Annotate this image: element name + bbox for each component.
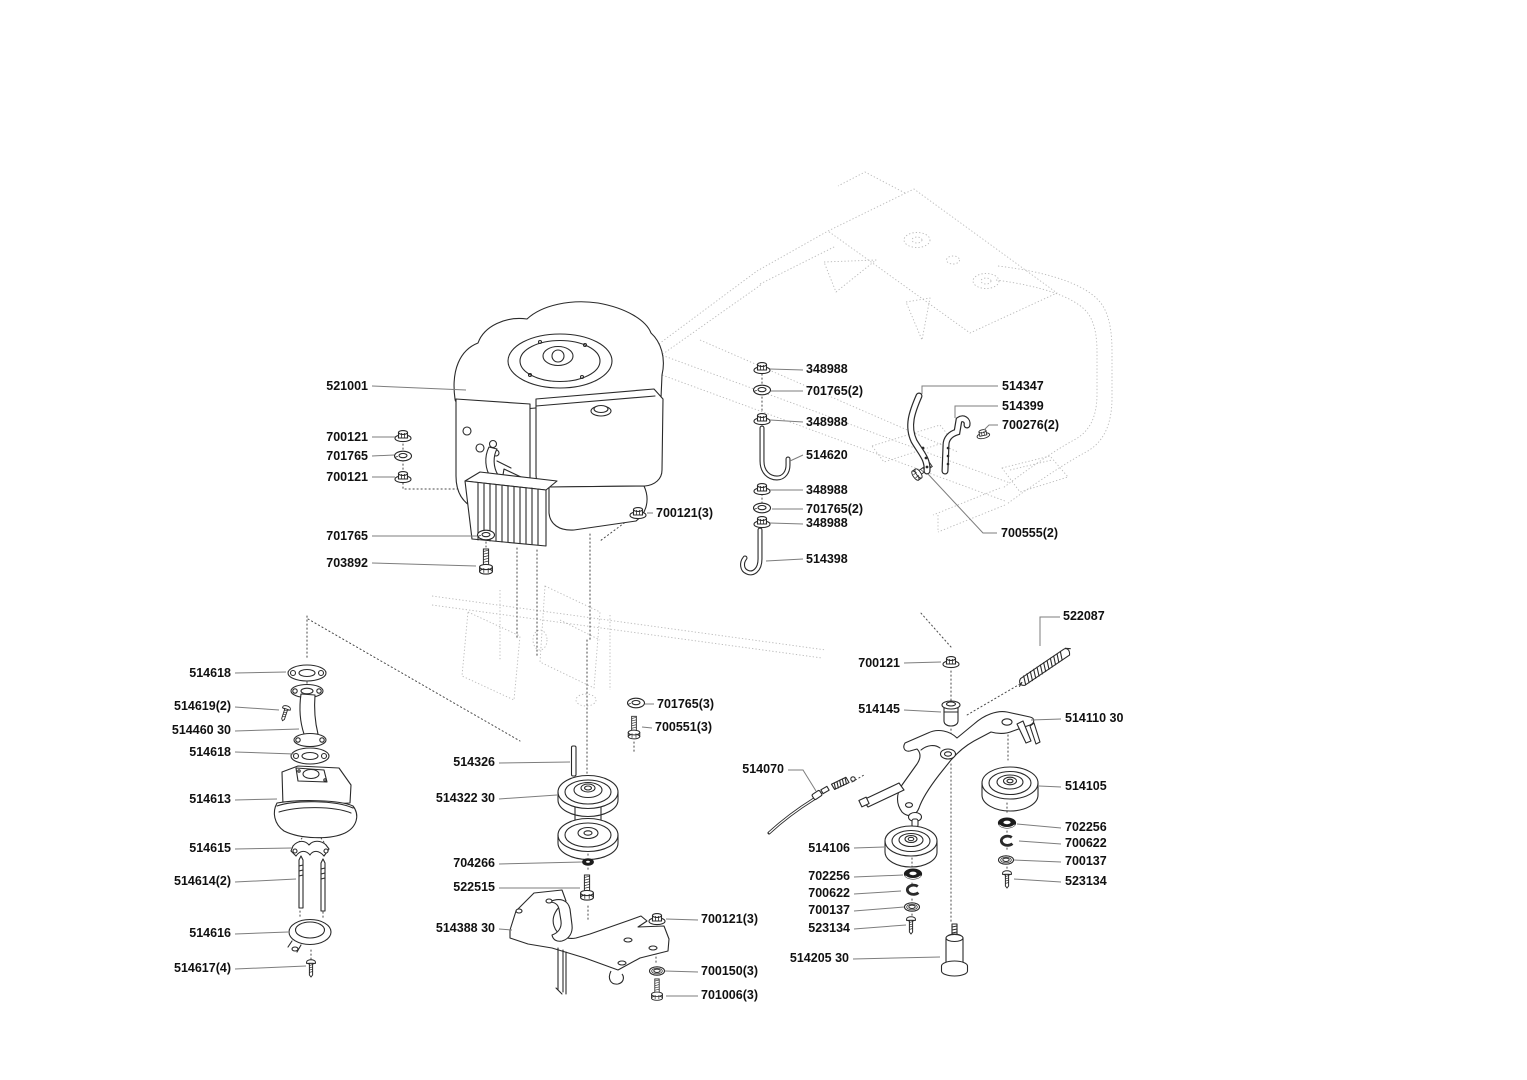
part-label: 521001: [326, 379, 368, 393]
part-label: 522515: [453, 880, 495, 894]
washer-icon: [583, 859, 594, 865]
pulley-icon: [982, 767, 1038, 811]
nut-icon: [754, 414, 770, 425]
nut-icon: [976, 428, 990, 439]
part-label: 700121: [326, 470, 368, 484]
part-label: 703892: [326, 556, 368, 570]
part-label: 348988: [806, 415, 848, 429]
part-label: 514616: [189, 926, 231, 940]
cup-washer-icon: [998, 818, 1015, 828]
engine-drawing: [454, 302, 663, 546]
key-icon: [572, 746, 577, 776]
part-label: 514460 30: [172, 723, 231, 737]
part-label: 701765: [326, 449, 368, 463]
part-label: 514617(4): [174, 961, 231, 975]
screw-icon: [279, 705, 291, 722]
washer-icon: [478, 530, 495, 540]
part-label: 514145: [858, 702, 900, 716]
part-label: 700137: [808, 903, 850, 917]
bolt-icon: [480, 549, 493, 574]
part-label: 702256: [1065, 820, 1107, 834]
part-label: 701765(2): [806, 502, 863, 516]
part-label: 701765: [326, 529, 368, 543]
parts-diagram-page: 521001 700121 701765 700121 701765 70389…: [0, 0, 1527, 1080]
bolt-icon: [628, 716, 640, 739]
part-label: 700121: [858, 656, 900, 670]
e-ring-icon: [1001, 836, 1012, 845]
e-ring-icon: [907, 885, 918, 894]
washer-icon: [650, 967, 665, 975]
parts-diagram-canvas: 521001 700121 701765 700121 701765 70389…: [0, 0, 1527, 1080]
part-label: 514205 30: [790, 951, 849, 965]
part-label: 702256: [808, 869, 850, 883]
strap-bracket-icon: [911, 396, 929, 471]
part-label: 700121(3): [656, 506, 713, 520]
part-label: 514620: [806, 448, 848, 462]
part-label: 523134: [1065, 874, 1107, 888]
part-label: 514388 30: [436, 921, 495, 935]
part-label: 348988: [806, 362, 848, 376]
bolt-icon: [652, 979, 663, 1000]
part-label: 514070: [742, 762, 784, 776]
part-label: 348988: [806, 483, 848, 497]
spacer-icon: [942, 701, 960, 726]
washer-icon: [754, 385, 771, 395]
screw-icon: [1003, 871, 1012, 888]
part-label: 348988: [806, 516, 848, 530]
part-label: 514326: [453, 755, 495, 769]
chassis-ghost-drawing: [432, 172, 1112, 706]
part-label: 514322 30: [436, 791, 495, 805]
part-label: 700121(3): [701, 912, 758, 926]
engine-pulley-assembly-drawing: [558, 746, 618, 900]
part-label: 701765(3): [657, 697, 714, 711]
part-label: 700150(3): [701, 964, 758, 978]
washer-icon: [905, 903, 920, 911]
nut-icon: [649, 914, 665, 925]
nut-icon: [754, 484, 770, 495]
nut-icon: [395, 472, 411, 483]
part-label: 514110 30: [1065, 711, 1123, 725]
part-label: 514618: [189, 745, 231, 759]
screw-icon: [907, 917, 916, 934]
part-label: 514105: [1065, 779, 1107, 793]
part-label: 701765(2): [806, 384, 863, 398]
part-label: 700551(3): [655, 720, 712, 734]
part-label: 700276(2): [1002, 418, 1059, 432]
part-label: 514618: [189, 666, 231, 680]
part-label: 514615: [189, 841, 231, 855]
part-label: 700622: [808, 886, 850, 900]
mount-plate-drawing: [510, 890, 669, 994]
nut-icon: [943, 657, 959, 668]
part-label: 523134: [808, 921, 850, 935]
part-label: 514398: [806, 552, 848, 566]
cup-washer-icon: [904, 869, 921, 879]
bolt-icon: [581, 875, 594, 900]
part-label: 700121: [326, 430, 368, 444]
washer-icon: [754, 503, 771, 513]
bolt-icon: [910, 460, 934, 481]
j-bolt-icon: [762, 428, 788, 478]
nut-icon: [754, 517, 770, 528]
part-label: 514613: [189, 792, 231, 806]
washer-icon: [628, 698, 645, 708]
part-label: 522087: [1063, 609, 1105, 623]
spring-icon: [1015, 646, 1074, 688]
part-label: 704266: [453, 856, 495, 870]
part-label: 514619(2): [174, 699, 231, 713]
part-label: 514614(2): [174, 874, 231, 888]
part-label: 700137: [1065, 854, 1107, 868]
nut-icon: [395, 431, 411, 442]
washer-icon: [999, 856, 1014, 864]
part-label: 514347: [1002, 379, 1044, 393]
part-label: 700555(2): [1001, 526, 1058, 540]
washer-icon: [395, 451, 412, 461]
part-label: 514399: [1002, 399, 1044, 413]
part-label: 701006(3): [701, 988, 758, 1002]
spindle-icon: [942, 924, 968, 976]
part-label: 514106: [808, 841, 850, 855]
part-label: 700622: [1065, 836, 1107, 850]
pulley-icon: [885, 826, 937, 867]
j-bolt-icon: [743, 530, 760, 573]
screw-icon: [307, 960, 316, 977]
